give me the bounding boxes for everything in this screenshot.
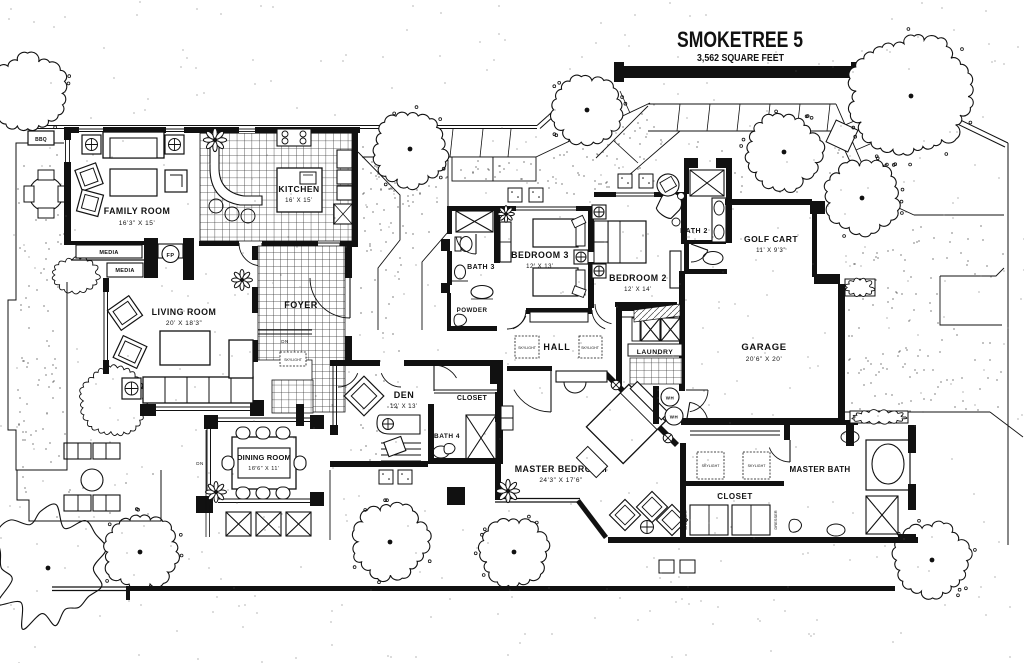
svg-text:20’ X 18’3”: 20’ X 18’3” — [166, 320, 202, 327]
svg-text:16’ X 15’: 16’ X 15’ — [285, 198, 313, 204]
svg-text:DINING ROOM: DINING ROOM — [237, 453, 291, 462]
svg-text:HALL: HALL — [543, 342, 570, 352]
svg-text:POWDER: POWDER — [457, 307, 488, 314]
svg-text:16’3” X 15’: 16’3” X 15’ — [119, 220, 156, 227]
svg-text:KITCHEN: KITCHEN — [278, 184, 319, 194]
svg-text:3,562 SQUARE FEET: 3,562 SQUARE FEET — [697, 53, 784, 64]
svg-text:MASTER BATH: MASTER BATH — [790, 465, 851, 474]
svg-text:DRESSER: DRESSER — [683, 510, 688, 529]
svg-text:11’ X 9’3”: 11’ X 9’3” — [756, 248, 786, 254]
svg-text:SKYLIGHT: SKYLIGHT — [748, 464, 767, 468]
svg-text:24’3” X 17’6”: 24’3” X 17’6” — [539, 477, 582, 484]
svg-text:SKYLIGHT: SKYLIGHT — [702, 464, 721, 468]
svg-text:BEDROOM 2: BEDROOM 2 — [609, 273, 667, 283]
svg-text:FOYER: FOYER — [284, 300, 318, 310]
svg-text:SKYLIGHT: SKYLIGHT — [581, 346, 600, 350]
svg-text:CLOSET: CLOSET — [717, 492, 752, 501]
svg-text:12’ X 13’: 12’ X 13’ — [390, 404, 418, 410]
svg-text:WH: WH — [670, 415, 679, 420]
svg-text:BATH 4: BATH 4 — [434, 433, 460, 440]
svg-text:WH: WH — [666, 396, 675, 401]
svg-text:BATH 2: BATH 2 — [680, 228, 708, 235]
svg-text:12’ X 14’: 12’ X 14’ — [624, 287, 652, 293]
svg-text:FAMILY ROOM: FAMILY ROOM — [104, 206, 171, 216]
svg-text:CLOSET: CLOSET — [457, 395, 488, 402]
svg-text:BEDROOM 3: BEDROOM 3 — [511, 250, 569, 260]
svg-text:BATH 3: BATH 3 — [467, 264, 495, 271]
svg-text:MEDIA: MEDIA — [99, 250, 118, 256]
svg-text:GARAGE: GARAGE — [741, 342, 786, 353]
svg-text:LAUNDRY: LAUNDRY — [637, 349, 673, 356]
svg-text:DEN: DEN — [394, 390, 415, 400]
svg-text:SKYLIGHT: SKYLIGHT — [284, 358, 303, 362]
svg-text:GOLF CART: GOLF CART — [744, 234, 798, 244]
svg-text:DN: DN — [281, 339, 289, 344]
svg-text:16’6” X 11’: 16’6” X 11’ — [248, 466, 279, 472]
svg-text:MEDIA: MEDIA — [115, 268, 134, 274]
svg-text:BBQ: BBQ — [35, 137, 47, 143]
svg-text:LIVING ROOM: LIVING ROOM — [152, 307, 217, 317]
svg-text:DRESSER: DRESSER — [773, 510, 778, 529]
svg-text:FP: FP — [166, 253, 174, 259]
svg-text:20’6” X 20’: 20’6” X 20’ — [746, 356, 783, 363]
svg-text:DN: DN — [196, 461, 204, 466]
svg-text:SMOKETREE 5: SMOKETREE 5 — [677, 27, 803, 52]
svg-text:SKYLIGHT: SKYLIGHT — [518, 346, 537, 350]
